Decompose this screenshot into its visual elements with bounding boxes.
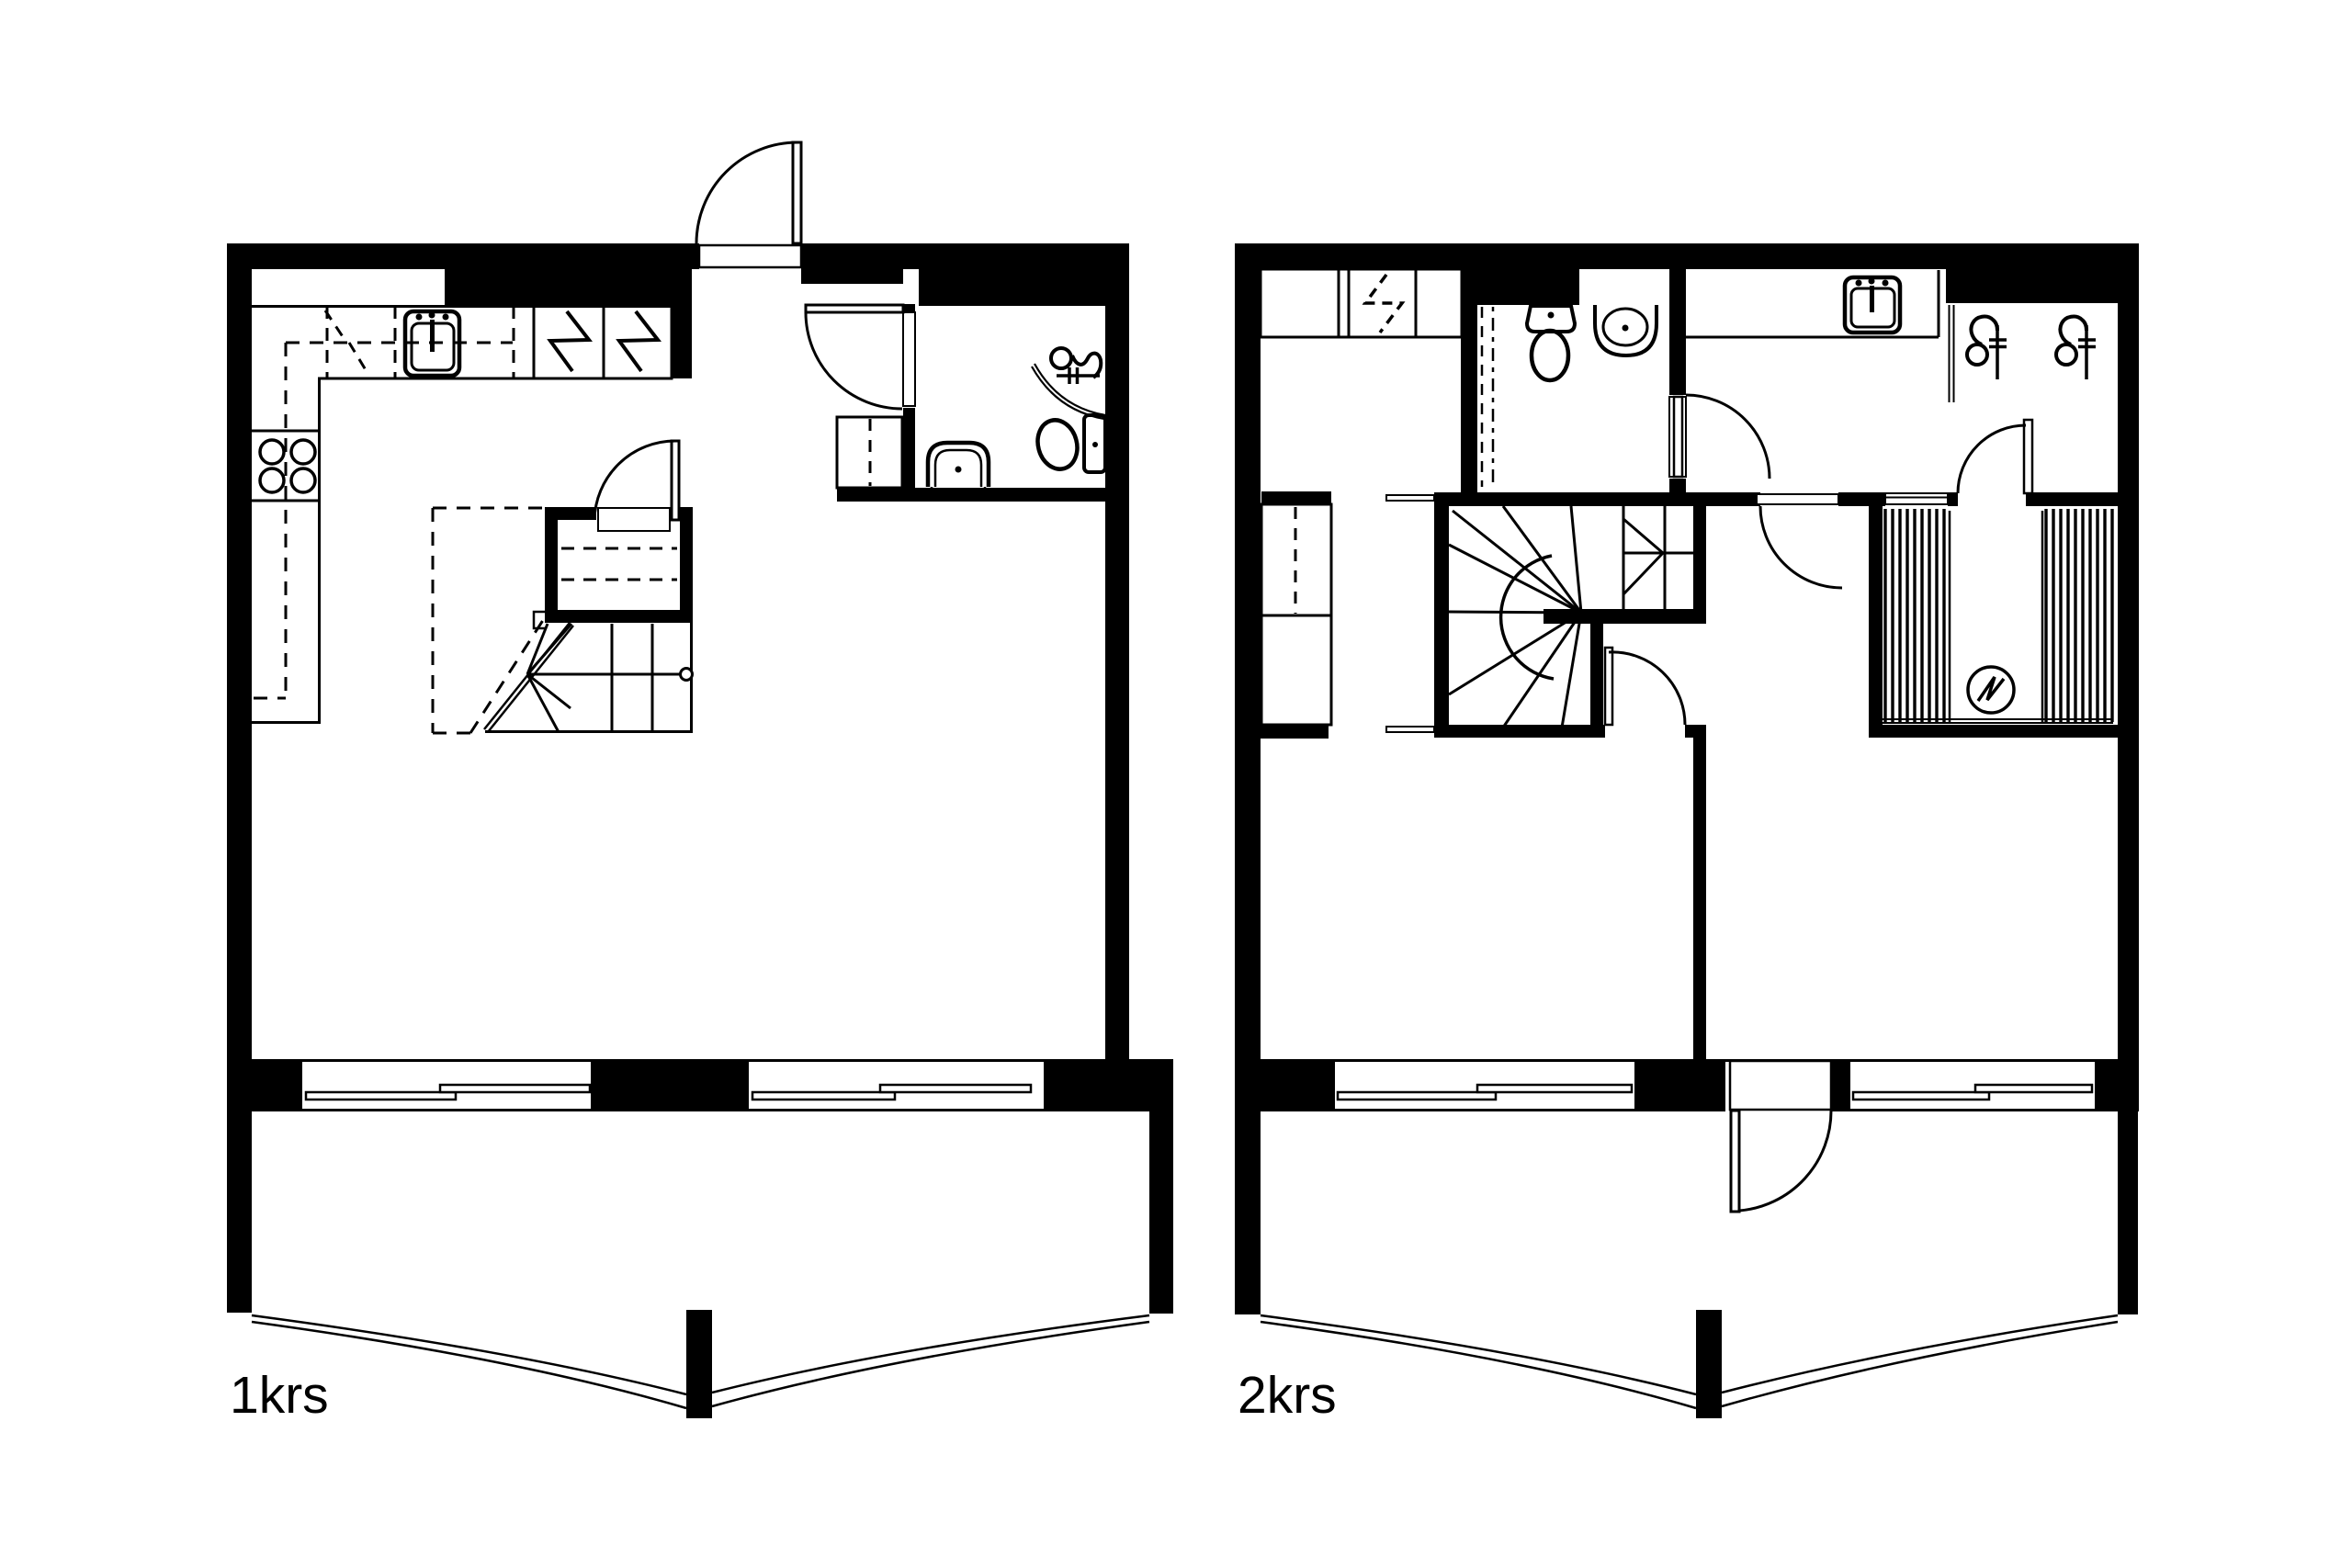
svg-text:2krs: 2krs: [1238, 1366, 1337, 1425]
svg-text:1krs: 1krs: [230, 1366, 329, 1425]
